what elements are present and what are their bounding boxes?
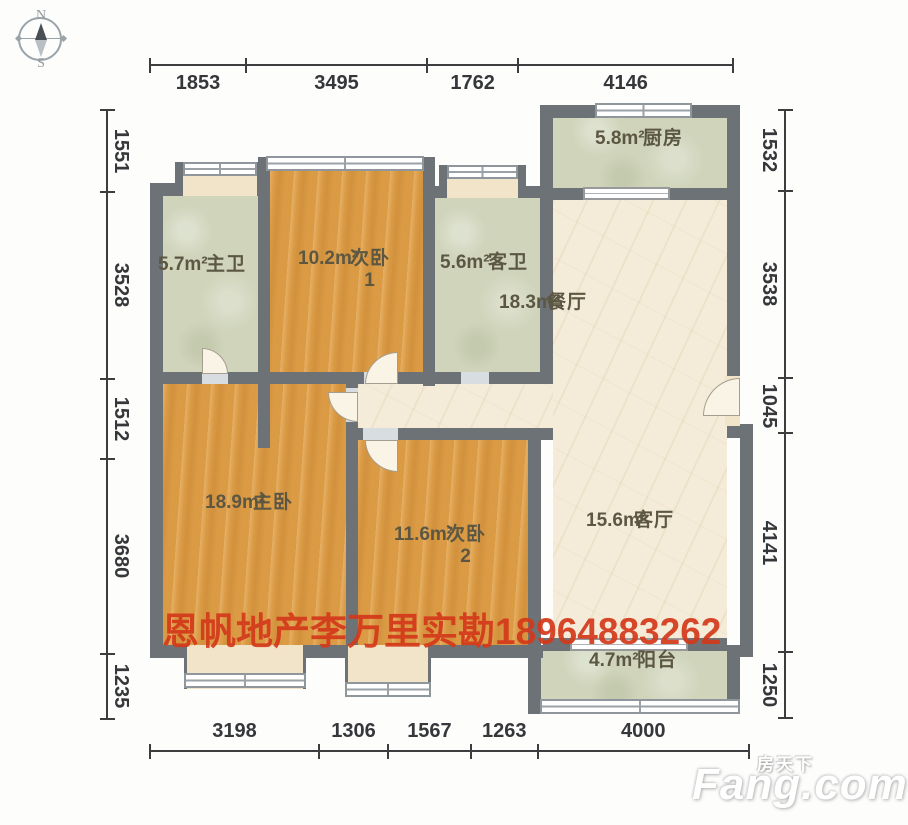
room-name: 厨房 <box>643 128 683 150</box>
bedroom1-window <box>266 156 424 171</box>
window-jamb <box>518 165 526 198</box>
kitchen-window <box>595 103 692 118</box>
balcony-window <box>540 699 740 714</box>
dim-label: 1235 <box>108 641 134 731</box>
dim-tick <box>537 744 539 759</box>
room-dining-living-floor <box>553 200 727 638</box>
dim-tick <box>149 744 151 759</box>
room-area: 5.7m² <box>158 254 208 276</box>
room-area: 11.6m² <box>394 524 453 546</box>
bedroom2-bay-window <box>345 682 431 697</box>
dim-line <box>784 110 786 718</box>
dim-tick <box>470 744 472 759</box>
dim-label: 4141 <box>756 498 782 588</box>
door-threshold <box>363 428 398 440</box>
compass-needle-north <box>35 23 47 40</box>
room-area: 18.9m² <box>205 492 265 514</box>
room-area: 10.2m² <box>298 248 358 270</box>
master-bed-bay-window <box>184 673 306 688</box>
room-area: 18.3m² <box>499 292 559 314</box>
dim-label: 1045 <box>756 361 782 451</box>
room-area: 5.6m² <box>440 252 490 274</box>
master-bath-window <box>183 162 257 176</box>
wall <box>727 105 740 378</box>
dim-label: 3538 <box>756 239 782 329</box>
room-master-bath-floor <box>163 196 258 372</box>
wall <box>740 432 753 654</box>
dim-tick <box>748 744 750 759</box>
room-area: 15.6m² <box>586 510 646 532</box>
dim-label: 1263 <box>459 720 549 743</box>
room-area: 5.8m² <box>595 128 645 150</box>
guest-bath-window <box>447 165 518 179</box>
window-jamb <box>439 165 447 198</box>
hallway-floor <box>358 384 553 428</box>
compass-needle-south <box>35 40 47 57</box>
dim-line <box>150 64 733 66</box>
floorplan-canvas: N S 1853349517624146 3198130615671263400… <box>0 0 908 825</box>
dim-label: 3198 <box>190 720 280 743</box>
dim-label: 1250 <box>756 640 782 730</box>
dim-label: 4000 <box>598 720 688 743</box>
dim-tick <box>517 58 519 73</box>
dim-label: 1532 <box>756 105 782 195</box>
window-jamb <box>257 162 265 196</box>
dim-label: 3495 <box>291 72 381 95</box>
dim-tick <box>387 744 389 759</box>
wall-stub <box>258 384 270 448</box>
dim-tick <box>245 58 247 73</box>
dim-line <box>150 750 749 752</box>
dim-label: 3528 <box>108 240 134 330</box>
wall <box>540 105 553 384</box>
dim-tick <box>149 58 151 73</box>
room-name: 主卫 <box>206 254 246 276</box>
agent-watermark: 恩帆地产李万里实勘18964883262 <box>162 601 721 655</box>
dim-tick <box>318 744 320 759</box>
kitchen-sliding-door <box>583 187 670 200</box>
wall <box>250 372 435 384</box>
window-jamb <box>175 162 183 196</box>
dim-label: 1853 <box>153 72 243 95</box>
guest-bath-door-threshold <box>461 372 489 384</box>
dim-label: 4146 <box>581 72 671 95</box>
wall <box>435 372 553 384</box>
dim-label: 3680 <box>108 511 134 601</box>
compass-north-label: N <box>12 8 70 24</box>
fang-logo-en: Fang.com <box>692 760 908 810</box>
dim-label: 1762 <box>428 72 518 95</box>
dim-label: 1512 <box>108 374 134 464</box>
dim-label: 1551 <box>108 106 134 196</box>
room-name: 客卫 <box>488 252 528 274</box>
dim-tick <box>732 58 734 73</box>
compass-south-label: S <box>12 56 70 72</box>
room-guest-bath-floor <box>435 198 540 372</box>
dim-tick <box>426 58 428 73</box>
compass-icon: N S <box>12 8 70 70</box>
